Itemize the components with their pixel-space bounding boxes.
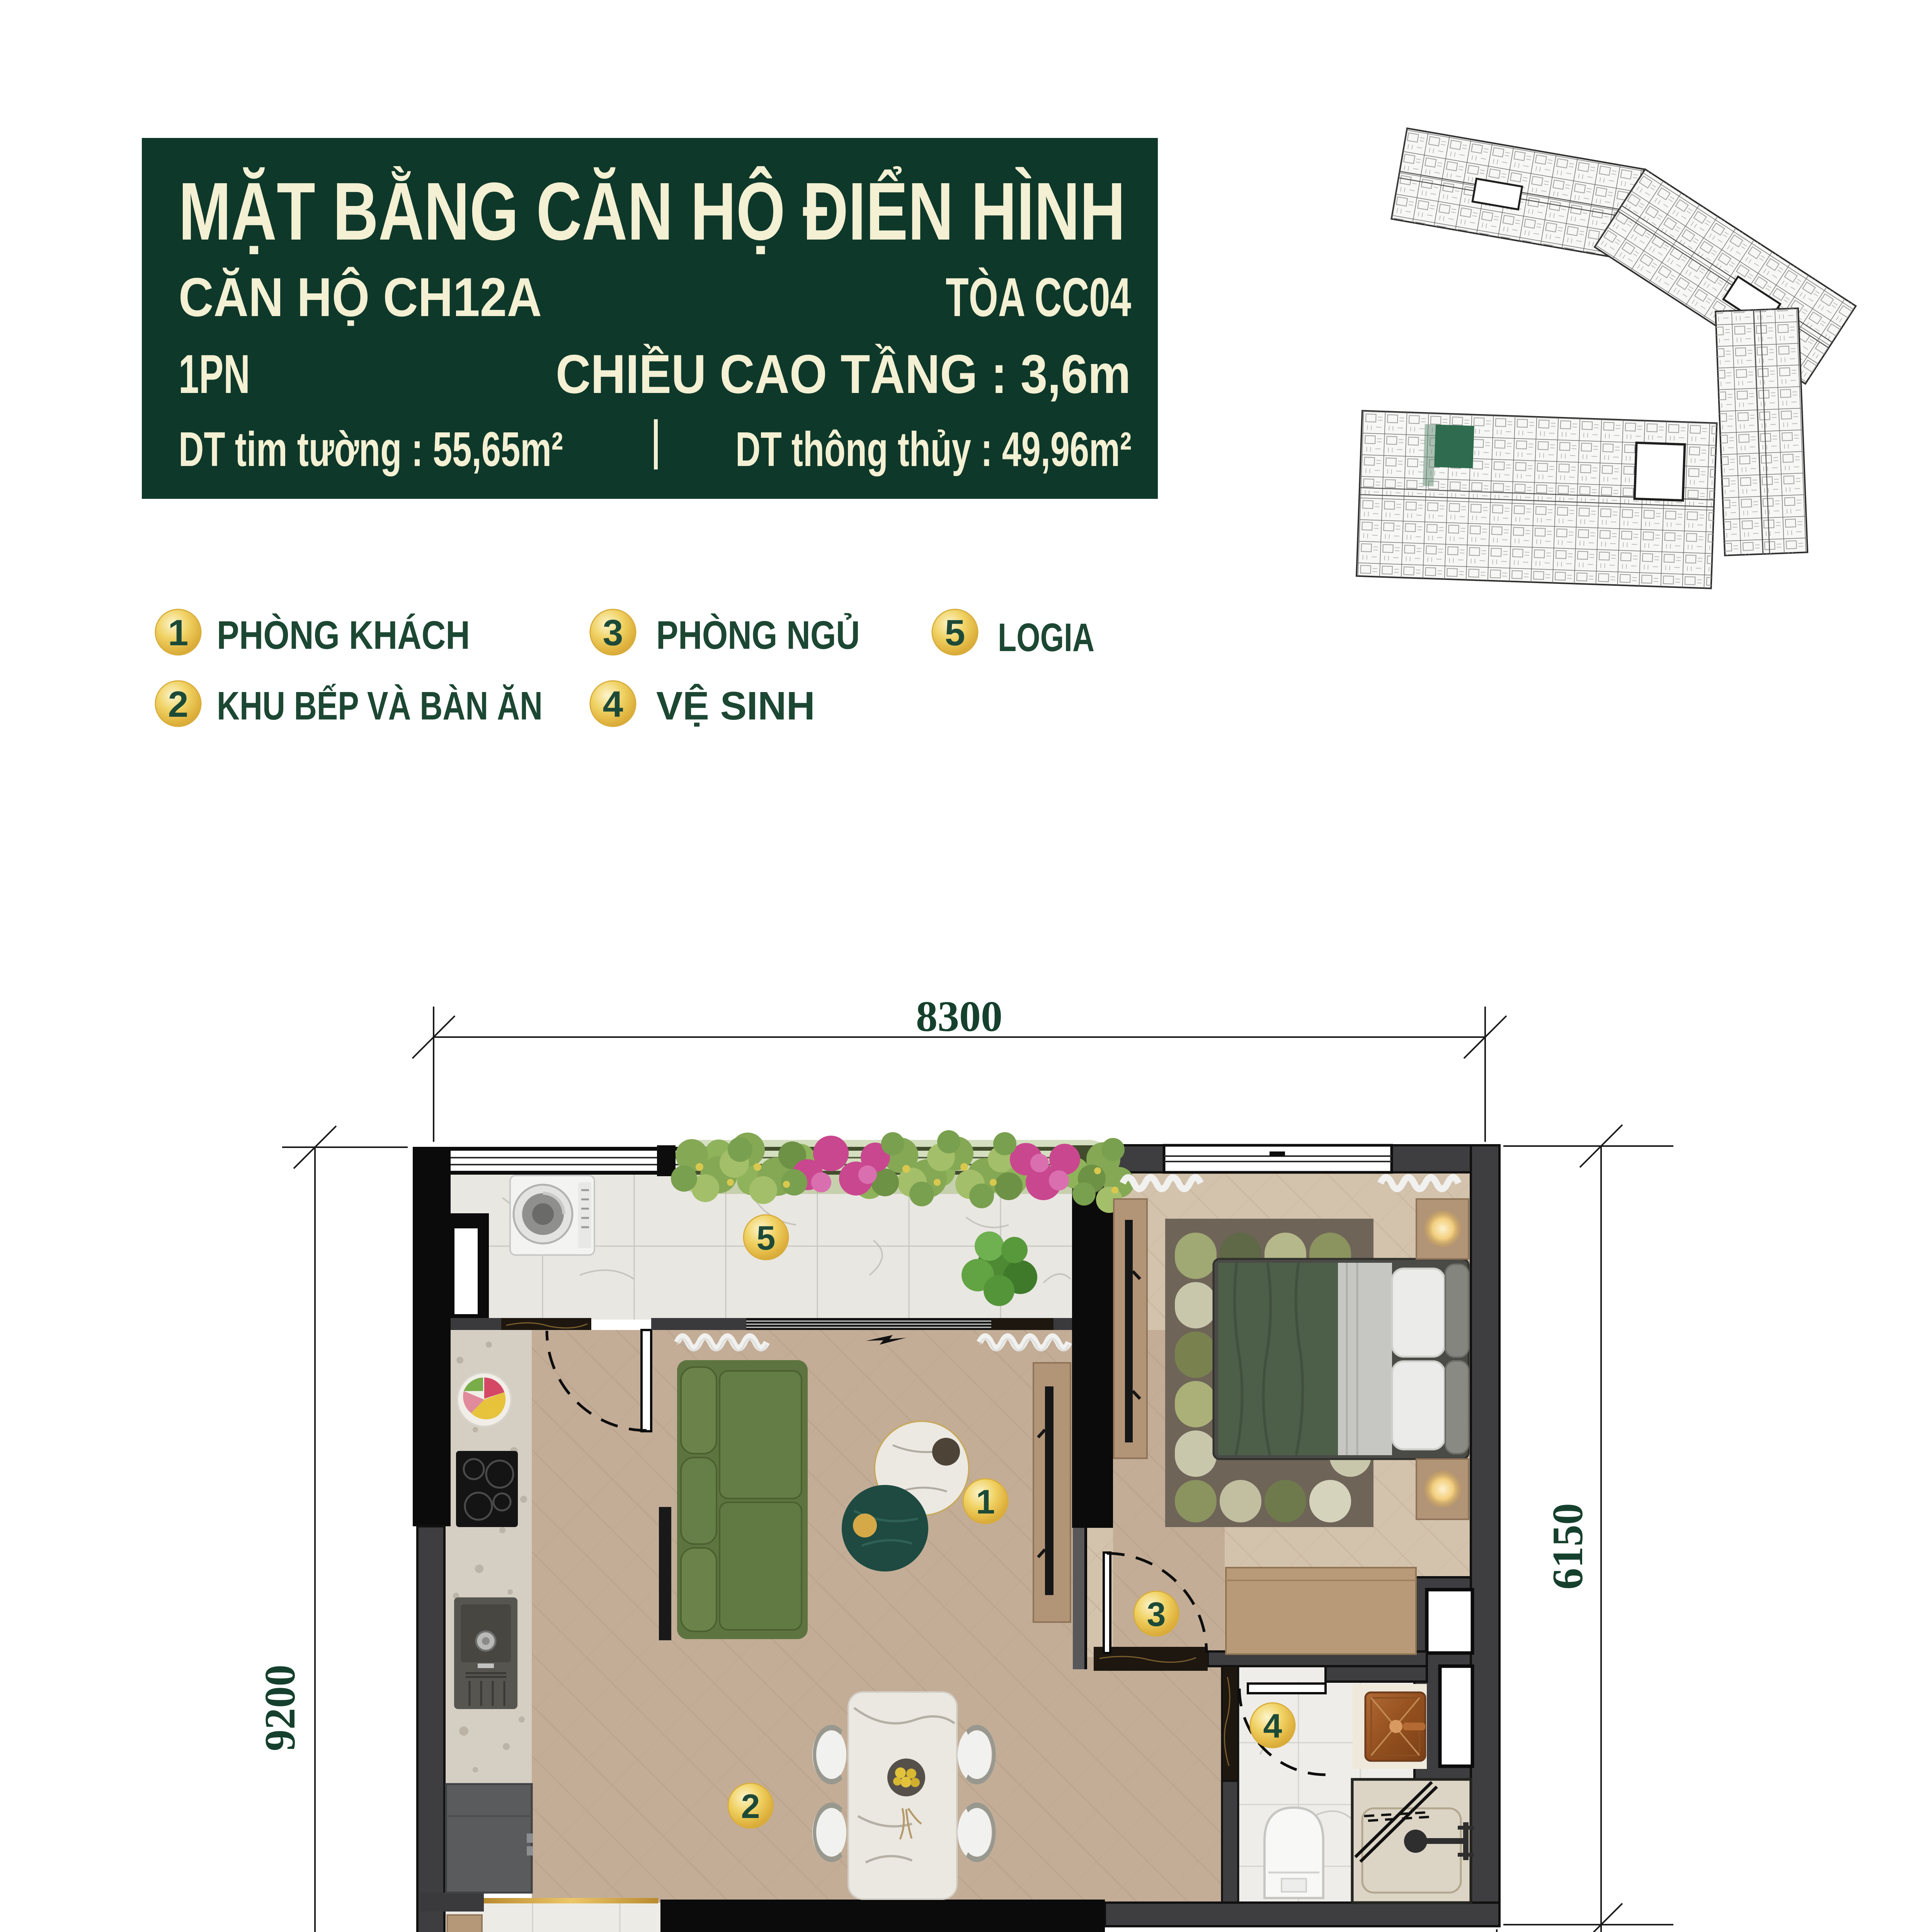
svg-text:1: 1 <box>976 1483 995 1521</box>
svg-text:MẶT BẰNG CĂN HỘ ĐIỂN HÌNH: MẶT BẰNG CĂN HỘ ĐIỂN HÌNH <box>179 165 1125 257</box>
svg-text:CĂN HỘ CH12A: CĂN HỘ CH12A <box>179 267 542 328</box>
svg-text:2: 2 <box>168 684 189 725</box>
svg-text:VỆ SINH: VỆ SINH <box>656 684 815 728</box>
svg-text:3: 3 <box>603 612 623 653</box>
svg-text:TÒA CC04: TÒA CC04 <box>946 267 1131 328</box>
svg-text:DT tim tường : 55,65m²: DT tim tường : 55,65m² <box>179 422 563 476</box>
svg-text:4: 4 <box>603 684 623 725</box>
svg-text:CHIỀU CAO TẦNG : 3,6m: CHIỀU CAO TẦNG : 3,6m <box>556 344 1131 405</box>
svg-text:PHÒNG KHÁCH: PHÒNG KHÁCH <box>217 613 470 657</box>
svg-text:1: 1 <box>168 612 189 653</box>
svg-text:4: 4 <box>1263 1707 1282 1745</box>
svg-text:5: 5 <box>945 612 965 653</box>
svg-text:8300: 8300 <box>916 993 1002 1041</box>
svg-text:5: 5 <box>757 1219 776 1257</box>
svg-text:1PN: 1PN <box>179 344 250 405</box>
svg-text:3: 3 <box>1147 1595 1166 1633</box>
svg-text:LOGIA: LOGIA <box>998 615 1094 660</box>
svg-text:DT thông thủy : 49,96m²: DT thông thủy : 49,96m² <box>735 422 1132 476</box>
svg-text:6150: 6150 <box>1544 1503 1592 1590</box>
svg-text:PHÒNG NGỦ: PHÒNG NGỦ <box>656 612 860 657</box>
svg-text:2: 2 <box>741 1787 760 1825</box>
svg-text:KHU BẾP VÀ BÀN ĂN: KHU BẾP VÀ BÀN ĂN <box>217 684 543 728</box>
svg-text:9200: 9200 <box>256 1665 304 1751</box>
